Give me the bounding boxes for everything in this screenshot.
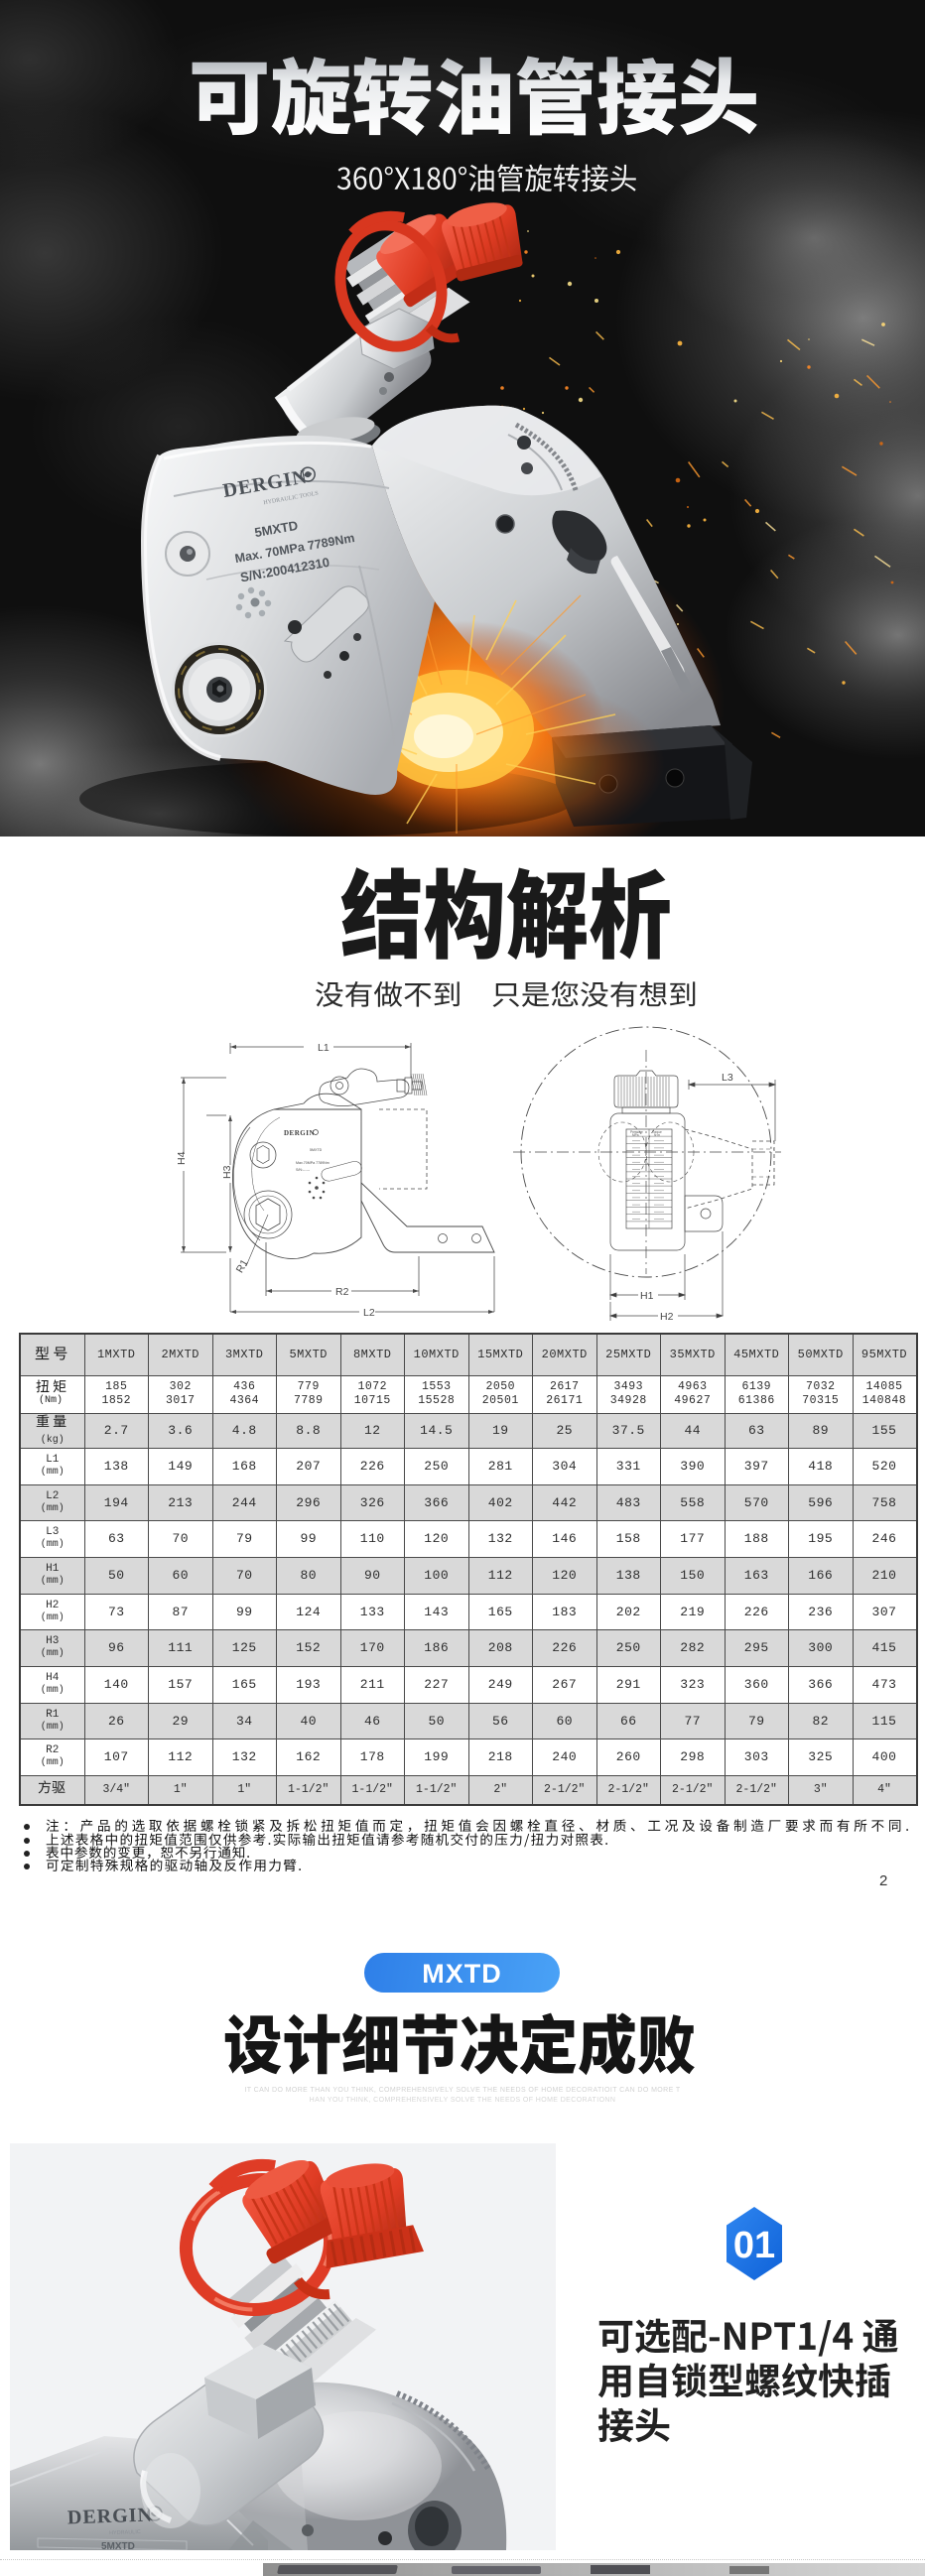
svg-text:R2: R2 xyxy=(335,1286,349,1298)
svg-text:5MXTD: 5MXTD xyxy=(101,2541,135,2550)
svg-text:DERGIN: DERGIN xyxy=(284,1129,315,1137)
svg-text:N·m: N·m xyxy=(654,1133,660,1137)
svg-text:MPa: MPa xyxy=(632,1133,639,1137)
svg-text:HYDRAULIC: HYDRAULIC xyxy=(109,2529,141,2536)
svg-text:L2: L2 xyxy=(363,1307,375,1319)
svg-text:H4: H4 xyxy=(176,1151,188,1165)
svg-text:5MXTD: 5MXTD xyxy=(310,1148,323,1152)
svg-text:L3: L3 xyxy=(722,1072,733,1084)
svg-text:S/N:------: S/N:------ xyxy=(296,1168,311,1172)
svg-text:H3: H3 xyxy=(221,1165,233,1179)
svg-text:DERGIN: DERGIN xyxy=(67,2504,154,2528)
svg-text:H2: H2 xyxy=(660,1311,674,1323)
svg-text:01: 01 xyxy=(733,2225,775,2266)
svg-text:Max.70MPa 7789Nm: Max.70MPa 7789Nm xyxy=(296,1161,330,1165)
svg-text:H1: H1 xyxy=(640,1290,654,1302)
svg-text:L1: L1 xyxy=(318,1042,330,1054)
